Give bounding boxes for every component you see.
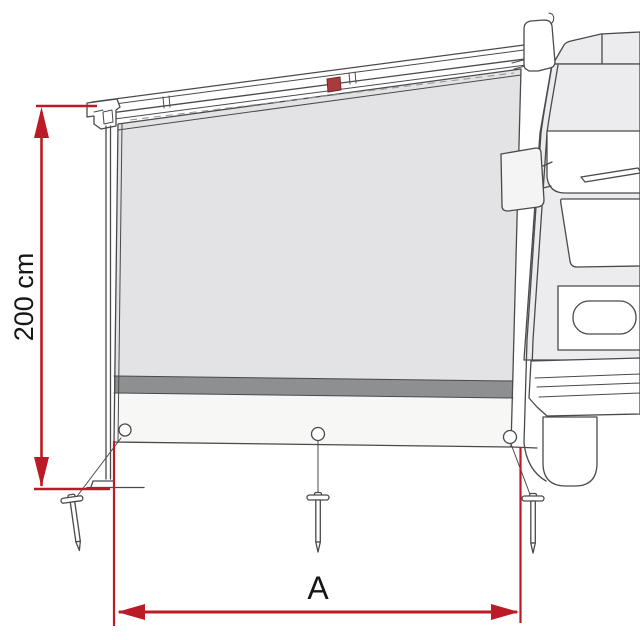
ground-peg-right bbox=[522, 494, 544, 554]
dimension-diagram: 200 cm A bbox=[0, 0, 640, 640]
diagram-canvas: 200 cm A bbox=[0, 0, 640, 640]
height-dim-arrow-down bbox=[34, 457, 49, 487]
side-panel bbox=[114, 69, 521, 447]
peg-tip bbox=[316, 542, 321, 552]
grommet-right bbox=[504, 431, 517, 444]
vehicle-roof bbox=[553, 32, 640, 64]
height-dim-arrow-up bbox=[34, 107, 49, 138]
arm-knuckle-right bbox=[349, 72, 356, 84]
ground-peg-left bbox=[60, 493, 90, 552]
vehicle-outline bbox=[512, 32, 640, 486]
vehicle-side-window-lower bbox=[561, 199, 640, 267]
height-dimension-label: 200 cm bbox=[9, 253, 39, 342]
grommet-middle bbox=[312, 428, 325, 441]
ground-peg-middle bbox=[307, 493, 329, 553]
peg-crossbar bbox=[522, 496, 544, 501]
width-dim-arrow-right bbox=[491, 604, 519, 620]
awning-end-cap-right bbox=[524, 20, 555, 71]
roller-clamp-block bbox=[327, 77, 341, 92]
width-dim-arrow-left bbox=[117, 604, 145, 620]
height-dimension: 200 cm bbox=[9, 106, 110, 489]
vehicle-side-window-upper bbox=[547, 131, 640, 193]
vehicle-wheel bbox=[543, 417, 597, 486]
peg-tip bbox=[531, 543, 536, 553]
peg-crossbar bbox=[307, 495, 329, 500]
guy-ropes bbox=[75, 438, 531, 499]
peg-shaft bbox=[70, 502, 80, 542]
pole-lines bbox=[106, 126, 111, 479]
peg-shaft bbox=[316, 500, 321, 542]
width-dimension-label: A bbox=[307, 570, 329, 606]
vehicle-door-panel bbox=[558, 286, 640, 350]
peg-tip bbox=[76, 541, 82, 551]
mirror-glass bbox=[501, 148, 544, 211]
pole-foot bbox=[91, 481, 114, 487]
peg-shaft bbox=[531, 501, 536, 543]
grommet-left bbox=[119, 424, 131, 436]
